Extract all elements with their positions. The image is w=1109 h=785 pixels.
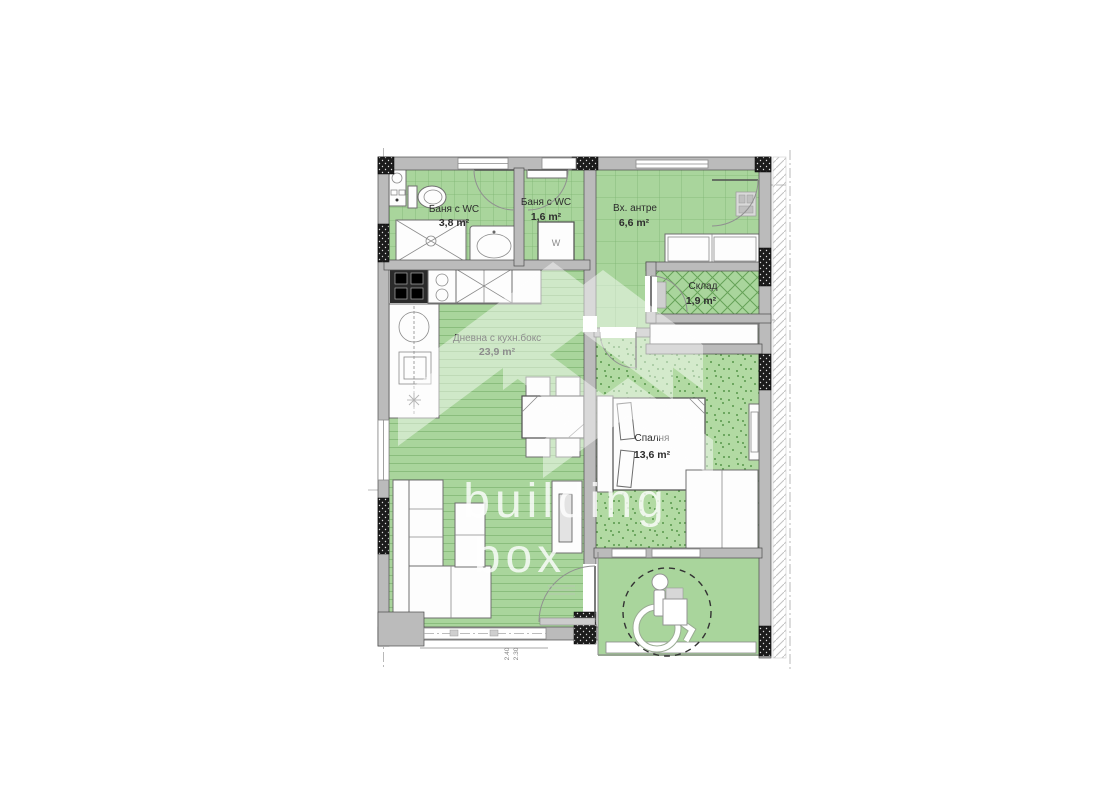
kitchen-sink-icon bbox=[456, 269, 512, 303]
bedroom-wardrobe-icon bbox=[686, 470, 758, 552]
washer-label: W bbox=[552, 238, 561, 248]
terrace-door bbox=[652, 549, 700, 557]
sofa-seats bbox=[409, 480, 443, 566]
cooktop-icon bbox=[390, 269, 428, 303]
label-hall-name: Вх. антре bbox=[613, 203, 657, 214]
label-bath1-area: 3,8 m² bbox=[439, 217, 470, 229]
watermark-line2: box bbox=[474, 530, 566, 583]
dresser-icon bbox=[749, 404, 760, 460]
room-storage-floor bbox=[652, 271, 762, 317]
dimension-2: 2.30 bbox=[513, 647, 520, 660]
watermark-line1: building bbox=[463, 475, 668, 528]
sofa-back bbox=[393, 480, 409, 618]
label-storage-area: 1,9 m² bbox=[686, 295, 717, 307]
hall-wardrobe-icon bbox=[665, 234, 759, 264]
floor-plan-canvas: W bbox=[0, 0, 1109, 785]
label-storage-name: Склад bbox=[689, 281, 718, 292]
shaft-icon bbox=[736, 192, 756, 216]
label-bedroom-area: 13,6 m² bbox=[634, 449, 671, 461]
floor-plan-drawing: W bbox=[0, 0, 1109, 785]
window bbox=[542, 158, 576, 169]
dimension-labels: 2.40 2.30 bbox=[504, 647, 520, 660]
window bbox=[612, 549, 646, 557]
label-bath2-name: Баня с WC bbox=[521, 197, 571, 208]
wall-bath-divider bbox=[514, 168, 524, 266]
wall-storage-north bbox=[646, 262, 771, 271]
hob-icon bbox=[428, 269, 456, 303]
label-bath1-name: Баня с WC bbox=[429, 204, 479, 215]
label-hall-area: 6,6 m² bbox=[619, 217, 650, 229]
vanity-sink-icon bbox=[470, 226, 518, 264]
terrace-planter bbox=[606, 642, 756, 653]
dimension-1: 2.40 bbox=[504, 647, 511, 660]
label-bath2-area: 1,6 m² bbox=[531, 211, 562, 223]
party-wall-hatch-band bbox=[773, 157, 786, 658]
washing-machine-icon: W bbox=[538, 222, 574, 262]
